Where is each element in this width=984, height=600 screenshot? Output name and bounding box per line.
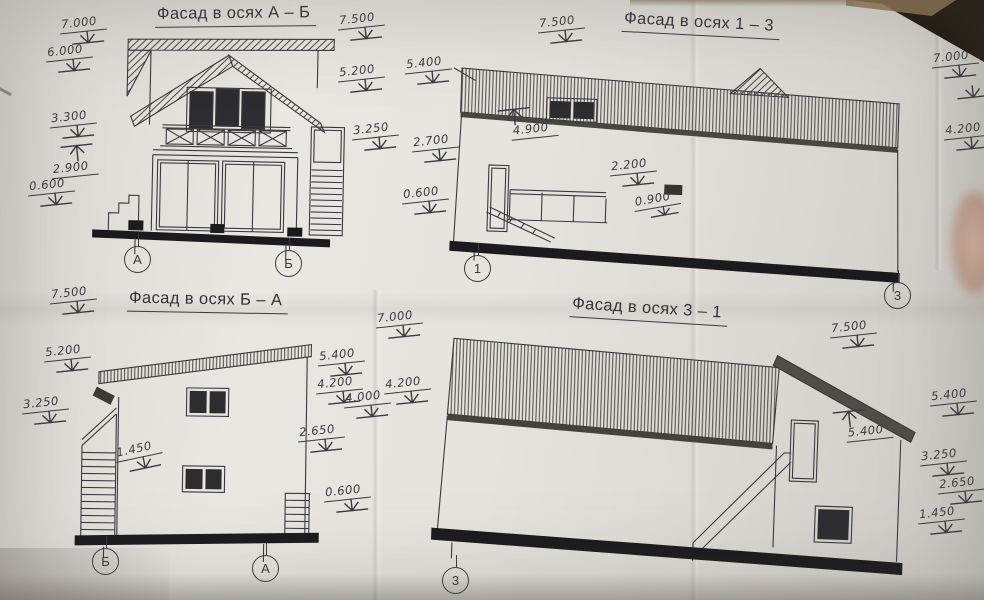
axis-bubble-b: Б bbox=[275, 250, 302, 277]
elevation-mark: 0.600 bbox=[323, 482, 373, 517]
photographed-architectural-drawing: { "titles": { "ab": "Фасад в осях А – Б"… bbox=[0, 0, 984, 600]
elevation-arrow-down-icon bbox=[415, 68, 450, 87]
elevation-mark: 6.000 bbox=[45, 42, 95, 77]
elevation-mark: 5.200 bbox=[43, 342, 93, 377]
elevation-mark: 5.400 bbox=[404, 54, 454, 89]
elevation-mark: 7.500 bbox=[49, 284, 99, 319]
axis-bubble-1: 1 bbox=[464, 255, 491, 282]
elevation-arrow-down-icon bbox=[32, 408, 67, 427]
elevation-arrow-down-icon bbox=[38, 190, 73, 209]
elevation-arrow-down-icon bbox=[348, 76, 383, 95]
elevation-mark: 0.600 bbox=[27, 176, 77, 211]
elevation-mark: 3.250 bbox=[21, 394, 71, 429]
elevation-arrow-down-icon bbox=[386, 322, 421, 341]
elevation-arrow-down-icon bbox=[412, 198, 447, 217]
elevation-mark: 7.500 bbox=[337, 10, 387, 45]
paper-margin-mark bbox=[0, 87, 12, 96]
axis-bubble-a: А bbox=[124, 246, 151, 273]
facade-drawing-3-1 bbox=[424, 324, 922, 593]
facade-title-1-3: Фасад в осях 1 – 3 bbox=[622, 9, 781, 40]
elevation-mark: 3.300 bbox=[49, 108, 99, 143]
elevation-mark: 4.200 bbox=[943, 120, 984, 155]
elevation-mark: 5.400 bbox=[929, 386, 979, 421]
elevation-arrow-down-icon bbox=[354, 402, 389, 421]
elevation-mark: 2.200 bbox=[609, 156, 659, 191]
elevation-mark: 4.900 bbox=[496, 103, 558, 141]
axis-label: Б bbox=[284, 256, 293, 271]
elevation-mark: 5.400 bbox=[831, 405, 893, 443]
elevation-arrow-down-icon bbox=[334, 496, 369, 515]
elevation-mark: 7.500 bbox=[537, 13, 587, 48]
elevation-mark: 7.500 bbox=[829, 318, 879, 353]
axis-label: А bbox=[133, 252, 142, 267]
elevation-arrow-down-icon bbox=[954, 134, 984, 153]
elevation-mark: 2.650 bbox=[297, 422, 347, 457]
paper-crease bbox=[934, 0, 943, 270]
elevation-arrow-down-icon bbox=[60, 122, 95, 141]
elevation-arrow-down-icon bbox=[362, 134, 397, 153]
elevation-mark: 3.250 bbox=[351, 120, 401, 155]
elevation-mark: 1.450 bbox=[917, 504, 967, 539]
facade-drawing-1-3 bbox=[441, 38, 918, 298]
elevation-mark: 2.700 bbox=[411, 132, 461, 167]
photo-paper-edge-shadow bbox=[630, 0, 855, 7]
elevation-arrow-down-icon bbox=[940, 400, 975, 419]
photo-corner-shadow bbox=[0, 548, 170, 600]
elevation-mark: 4.200 bbox=[383, 374, 433, 409]
axis-label: 3 bbox=[894, 288, 901, 303]
elevation-arrow-down-icon bbox=[348, 24, 383, 43]
elevation-arrow-down-icon bbox=[955, 83, 984, 102]
elevation-mark: 0.600 bbox=[401, 184, 451, 219]
facade-drawing-a-b bbox=[90, 25, 345, 270]
axis-label: 1 bbox=[474, 261, 481, 276]
elevation-arrow-down-icon bbox=[56, 56, 91, 75]
photo-finger-blur bbox=[952, 192, 984, 294]
elevation-arrow-down-icon bbox=[394, 388, 429, 407]
elevation-arrow-down-icon bbox=[942, 62, 977, 81]
axis-bubble-3: 3 bbox=[884, 282, 911, 309]
elevation-arrow-down-icon bbox=[308, 436, 343, 455]
facade-title-a-b: Фасад в осях А – Б bbox=[155, 3, 317, 28]
elevation-mark-cut bbox=[955, 84, 984, 103]
elevation-mark: 5.200 bbox=[337, 62, 387, 97]
elevation-mark: 2.900 bbox=[48, 142, 98, 179]
elevation-mark: 7.000 bbox=[375, 308, 425, 343]
facade-title-b-a: Фасад в осях Б – А bbox=[127, 289, 289, 315]
elevation-arrow-down-icon bbox=[928, 518, 963, 537]
